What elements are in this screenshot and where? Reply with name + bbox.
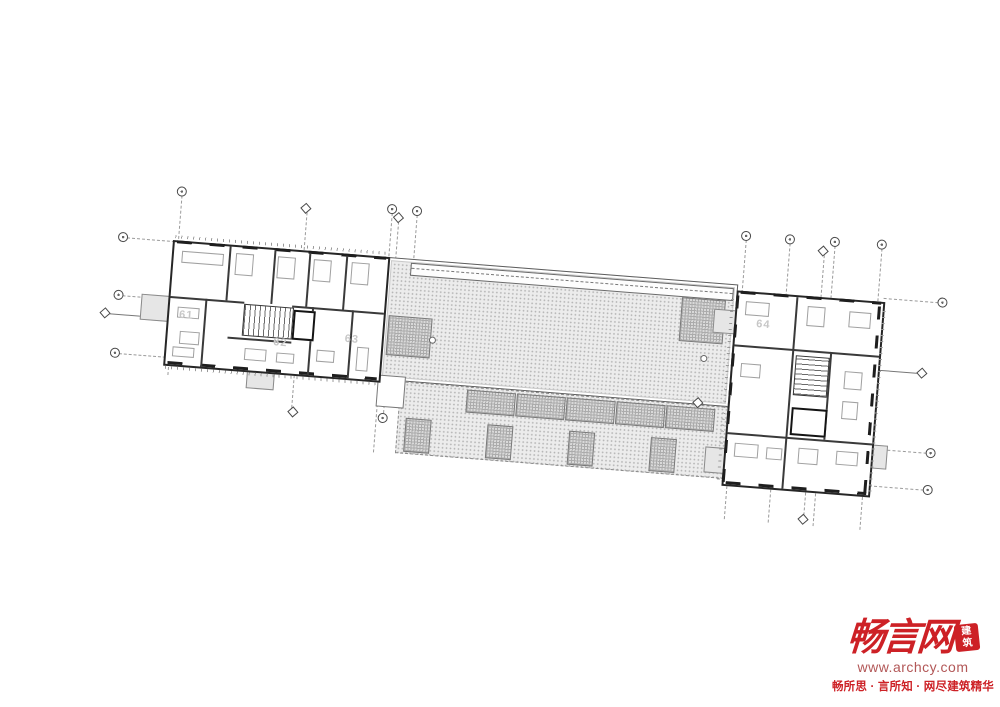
trellis-panel — [615, 401, 666, 428]
stair-core — [242, 304, 294, 340]
grid-bubble — [937, 297, 948, 308]
wall — [170, 296, 244, 303]
grid-bubble — [876, 239, 887, 250]
grid-bubble — [830, 237, 841, 248]
wall — [225, 246, 231, 300]
stair-core — [793, 355, 830, 398]
grid-bubble — [785, 234, 796, 245]
balcony — [140, 294, 170, 322]
wall — [305, 253, 311, 307]
planting-bed — [485, 424, 514, 460]
grid-line — [884, 298, 939, 303]
kitchen-counter — [181, 251, 224, 266]
drain-icon — [429, 336, 437, 344]
bed — [276, 256, 296, 279]
grid-bubble — [113, 290, 124, 301]
grid-line — [119, 353, 166, 358]
bed — [841, 401, 858, 420]
elevator-shaft — [790, 407, 828, 438]
grid-bubble — [377, 413, 388, 424]
bed — [806, 306, 826, 327]
table — [797, 448, 818, 466]
drain-icon — [700, 355, 708, 363]
unit-label-62: 62 — [273, 336, 288, 349]
grid-bubble — [176, 186, 187, 197]
grid-line — [127, 237, 175, 242]
section-marker — [99, 307, 110, 318]
bed — [350, 262, 370, 285]
grid-line — [869, 485, 924, 490]
logo-wordmark: 畅言网 — [846, 618, 954, 658]
wall — [270, 250, 276, 304]
planting-bed — [567, 431, 596, 467]
facade-wall — [726, 481, 867, 495]
logo-url: www.archcy.com — [824, 659, 1000, 675]
grid-bubble — [110, 347, 121, 358]
bed — [234, 253, 254, 276]
drawing-canvas: 61 62 63 — [0, 0, 1000, 707]
table — [316, 350, 335, 363]
unit-label-61: 61 — [179, 309, 194, 322]
seal-char-bottom: 筑 — [962, 637, 973, 649]
canopy-centerline — [411, 268, 732, 294]
sofa — [734, 443, 759, 459]
wall — [200, 299, 207, 367]
elevator-shaft — [292, 310, 316, 342]
grid-bubble — [118, 232, 129, 243]
sofa — [355, 347, 369, 372]
left-apartment-block — [163, 240, 390, 383]
planter — [386, 315, 433, 358]
logo-seal-icon: 建 筑 — [954, 623, 981, 652]
trellis-panel — [665, 405, 716, 432]
table — [740, 363, 761, 379]
table — [179, 331, 200, 346]
section-marker — [916, 368, 927, 379]
section-marker — [817, 245, 828, 256]
planting-bed — [648, 437, 677, 473]
wall — [342, 256, 348, 310]
unit-label-63: 63 — [344, 333, 359, 346]
watermark-logo: 畅言网 建 筑 www.archcy.com 畅所思 · 言所知 · 网尽建筑精… — [824, 618, 1000, 694]
grid-bubble — [741, 231, 752, 242]
bed — [848, 311, 871, 329]
table — [766, 447, 783, 460]
bed — [312, 259, 332, 282]
table — [244, 348, 267, 362]
right-apartment-block — [721, 290, 885, 497]
grid-bubble — [922, 485, 933, 496]
sofa — [745, 301, 770, 317]
logo-tagline: 畅所思 · 言所知 · 网尽建筑精华 — [824, 678, 1000, 694]
sofa — [172, 346, 195, 358]
section-leader-line — [878, 370, 918, 374]
trellis-panel — [465, 390, 516, 417]
planting-bed — [403, 418, 432, 454]
trellis-panel — [515, 393, 566, 420]
logo-row: 畅言网 建 筑 — [824, 618, 1000, 658]
unit-label-64: 64 — [756, 318, 771, 331]
section-marker — [287, 406, 298, 417]
grid-bubble — [412, 206, 423, 217]
section-marker — [797, 514, 808, 525]
bed — [843, 371, 862, 390]
sofa — [835, 451, 858, 467]
grid-bubble — [925, 448, 936, 459]
trellis-panel — [565, 397, 616, 424]
section-marker — [300, 203, 311, 214]
canopy-strip — [410, 263, 734, 301]
section-marker — [393, 212, 404, 223]
sofa — [276, 352, 295, 363]
